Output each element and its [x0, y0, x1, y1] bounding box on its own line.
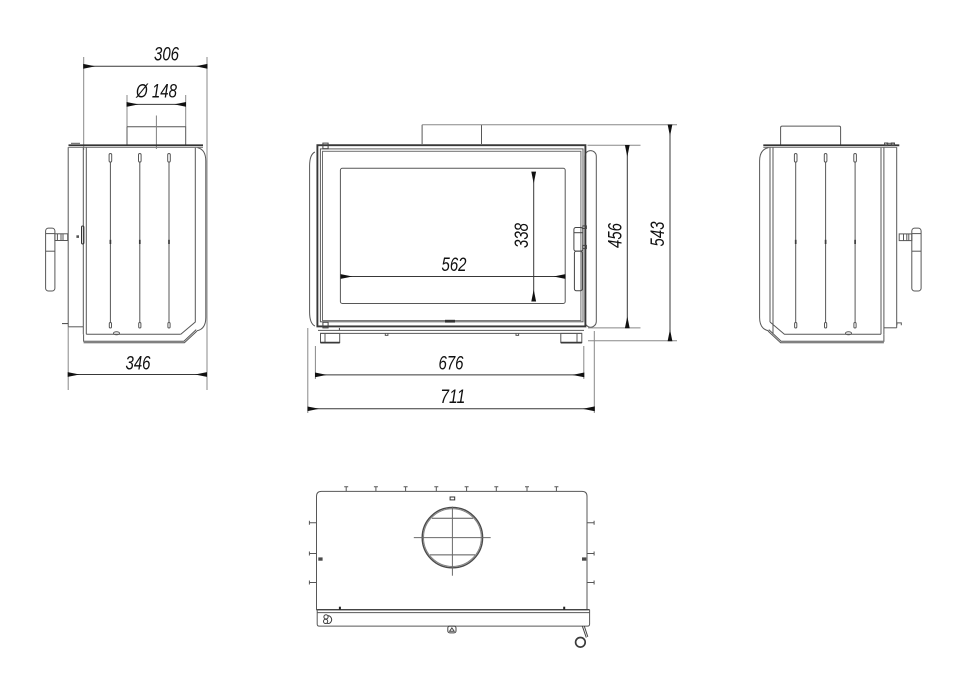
svg-text:306: 306	[154, 44, 179, 66]
svg-text:346: 346	[126, 353, 151, 375]
svg-text:676: 676	[439, 352, 464, 374]
svg-text:543: 543	[647, 221, 669, 246]
svg-text:711: 711	[440, 386, 465, 408]
svg-text:562: 562	[442, 254, 467, 276]
svg-text:456: 456	[604, 223, 626, 248]
svg-text:338: 338	[511, 223, 533, 248]
svg-text:Ø 148: Ø 148	[135, 81, 177, 103]
